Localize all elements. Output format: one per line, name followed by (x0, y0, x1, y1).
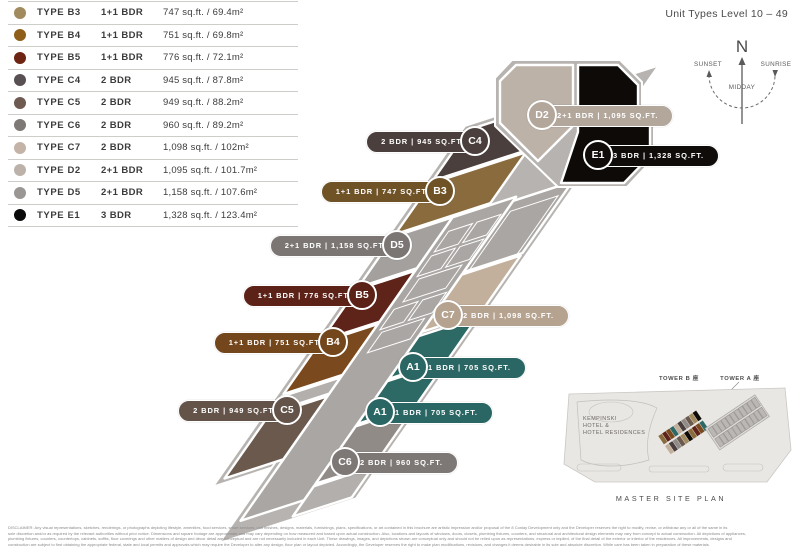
unit-badge-B5: B5 (347, 280, 377, 310)
unit-badge-D2: D2 (527, 100, 557, 130)
unit-badge-A1: A1 (365, 397, 395, 427)
tower-a-label: TOWER A 座 (720, 374, 760, 382)
unit-badge-E1: E1 (583, 140, 613, 170)
unit-badge-C5: C5 (272, 395, 302, 425)
unit-badge-C4: C4 (460, 126, 490, 156)
unit-badge-A1: A1 (398, 352, 428, 382)
tower-b-label: TOWER B 座 (659, 374, 699, 382)
unit-badge-B3: B3 (425, 176, 455, 206)
unit-badge-C7: C7 (433, 300, 463, 330)
svg-text:HOTEL &: HOTEL & (583, 423, 609, 429)
svg-text:HOTEL RESIDENCES: HOTEL RESIDENCES (583, 430, 645, 436)
unit-badge-B4: B4 (318, 327, 348, 357)
callout-label-D2: 2+1 BDR | 1,095 SQ.FT. (538, 105, 673, 127)
disclaimer-text: DISCLAIMER: Any visual representations, … (8, 525, 792, 547)
unit-badge-D5: D5 (382, 230, 412, 260)
site-plan-caption: MASTER SITE PLAN (616, 494, 726, 503)
unit-badge-C6: C6 (330, 447, 360, 477)
master-site-plan: TOWER B 座 TOWER A 座 KEMPINSKI HOTEL & HO… (553, 368, 800, 508)
hotel-label: KEMPINSKI (583, 416, 617, 422)
